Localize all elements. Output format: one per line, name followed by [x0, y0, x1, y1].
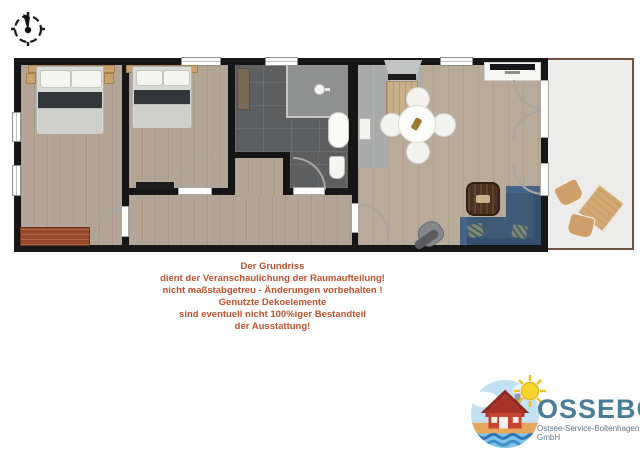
bed-runner	[38, 92, 102, 108]
sofa-backrest	[460, 238, 541, 245]
disclaimer-line: sind eventuell nicht 100%iger Bestandtei…	[90, 309, 455, 321]
disclaimer-text: Der Grundriss dient der Veranschaulichun…	[90, 261, 455, 333]
dining-chair	[406, 140, 430, 164]
disclaimer-line: nicht maßstabgetreu - Änderungen vorbeha…	[90, 285, 455, 297]
pillow	[136, 70, 163, 86]
disclaimer-line: Genutzte Dekoelemente	[90, 297, 455, 309]
nightstand	[26, 73, 36, 84]
pillow	[163, 70, 190, 86]
dresser	[20, 227, 90, 246]
tv-stand	[505, 71, 520, 74]
nightstand	[104, 73, 114, 84]
bed-duvet	[38, 108, 102, 134]
floorplan-image: Der Grundriss dient der Veranschaulichun…	[0, 0, 640, 452]
disclaimer-line: dient der Veranschaulichung der Raumauft…	[90, 273, 455, 285]
door-leaf	[351, 203, 359, 233]
window	[12, 165, 21, 196]
bathroom-shelf	[237, 68, 250, 110]
window	[12, 112, 21, 142]
pillow	[40, 70, 71, 88]
coffee-table-tray	[476, 195, 490, 203]
logo-title: OSSEBO	[537, 396, 640, 423]
shower-head-icon	[314, 84, 325, 95]
radiator	[136, 182, 174, 189]
door-leaf	[178, 187, 212, 195]
company-logo: OSSEBO Ostsee-Service-Boltenhagen GmbH	[445, 374, 640, 450]
toilet	[329, 156, 345, 179]
cooktop	[388, 74, 416, 80]
pillow	[71, 70, 102, 88]
bed-duvet	[134, 104, 190, 128]
door-leaf	[540, 163, 549, 196]
door-leaf	[121, 206, 129, 237]
sofa-armrest	[460, 217, 467, 245]
bathtub	[328, 112, 349, 148]
kitchen-sink	[359, 118, 371, 140]
disclaimer-line: der Ausstattung!	[90, 321, 455, 333]
sofa-pillow	[511, 224, 528, 239]
bed-runner	[134, 90, 190, 104]
logo-subtitle: Ostsee-Service-Boltenhagen GmbH	[537, 424, 640, 442]
door-leaf	[293, 187, 325, 195]
tv	[490, 64, 535, 70]
hallway-floor	[129, 195, 352, 245]
compass-icon	[8, 4, 48, 50]
window	[440, 57, 473, 66]
door-leaf	[540, 80, 549, 138]
hallway-floor	[235, 158, 283, 195]
disclaimer-line: Der Grundriss	[90, 261, 455, 273]
